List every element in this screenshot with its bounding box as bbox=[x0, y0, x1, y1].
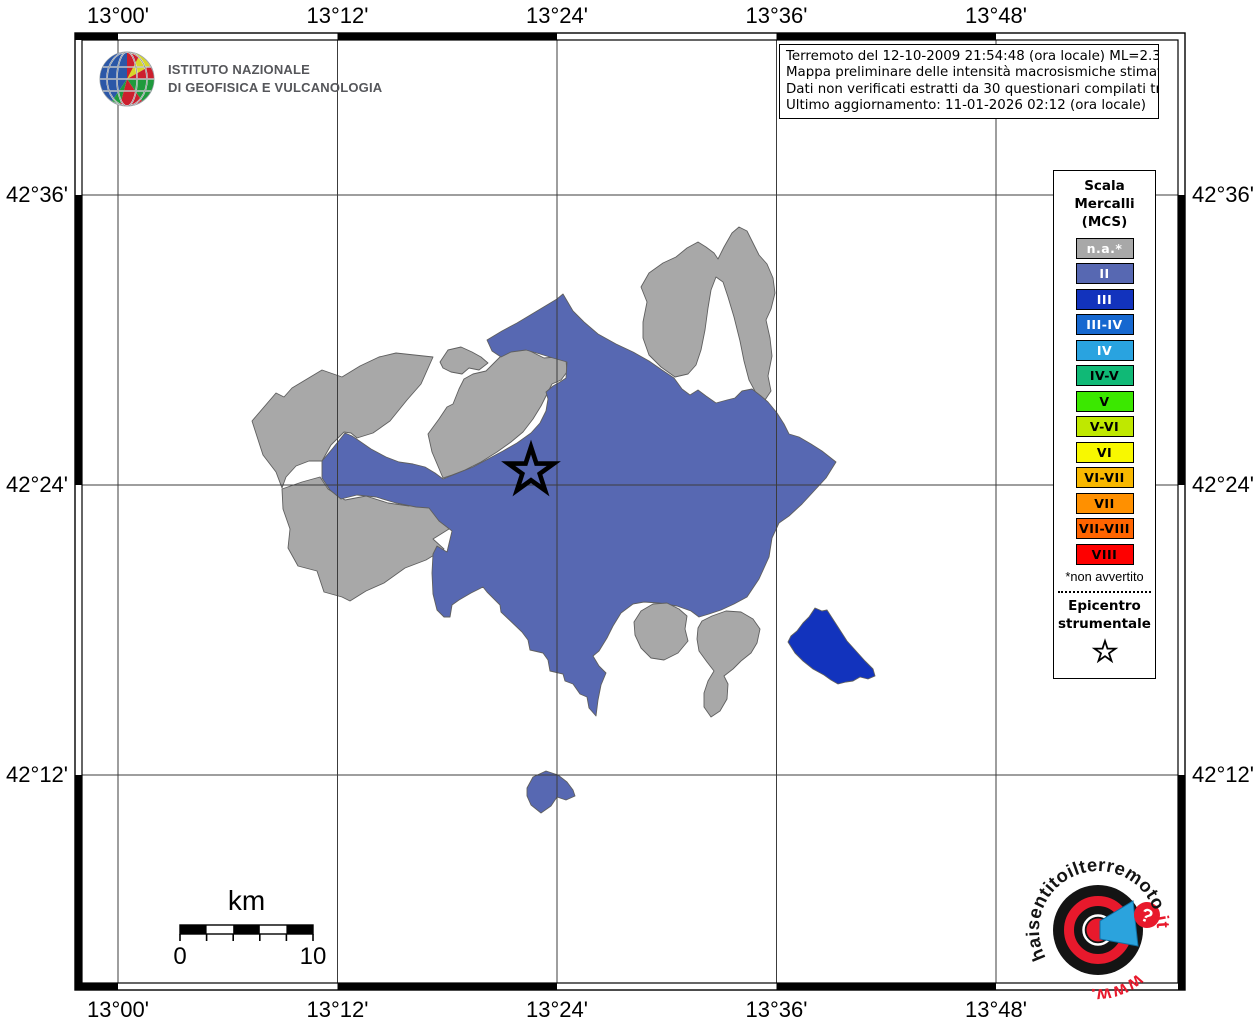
seismic-intensity-map-page: km010 13°00'13°12'13°24'13°36'13°48'13°0… bbox=[0, 0, 1257, 1024]
haisentito-logo: ? haisentitoilterremoto.it www. bbox=[0, 0, 1257, 1024]
logo-www-text: www. bbox=[1088, 970, 1148, 1007]
